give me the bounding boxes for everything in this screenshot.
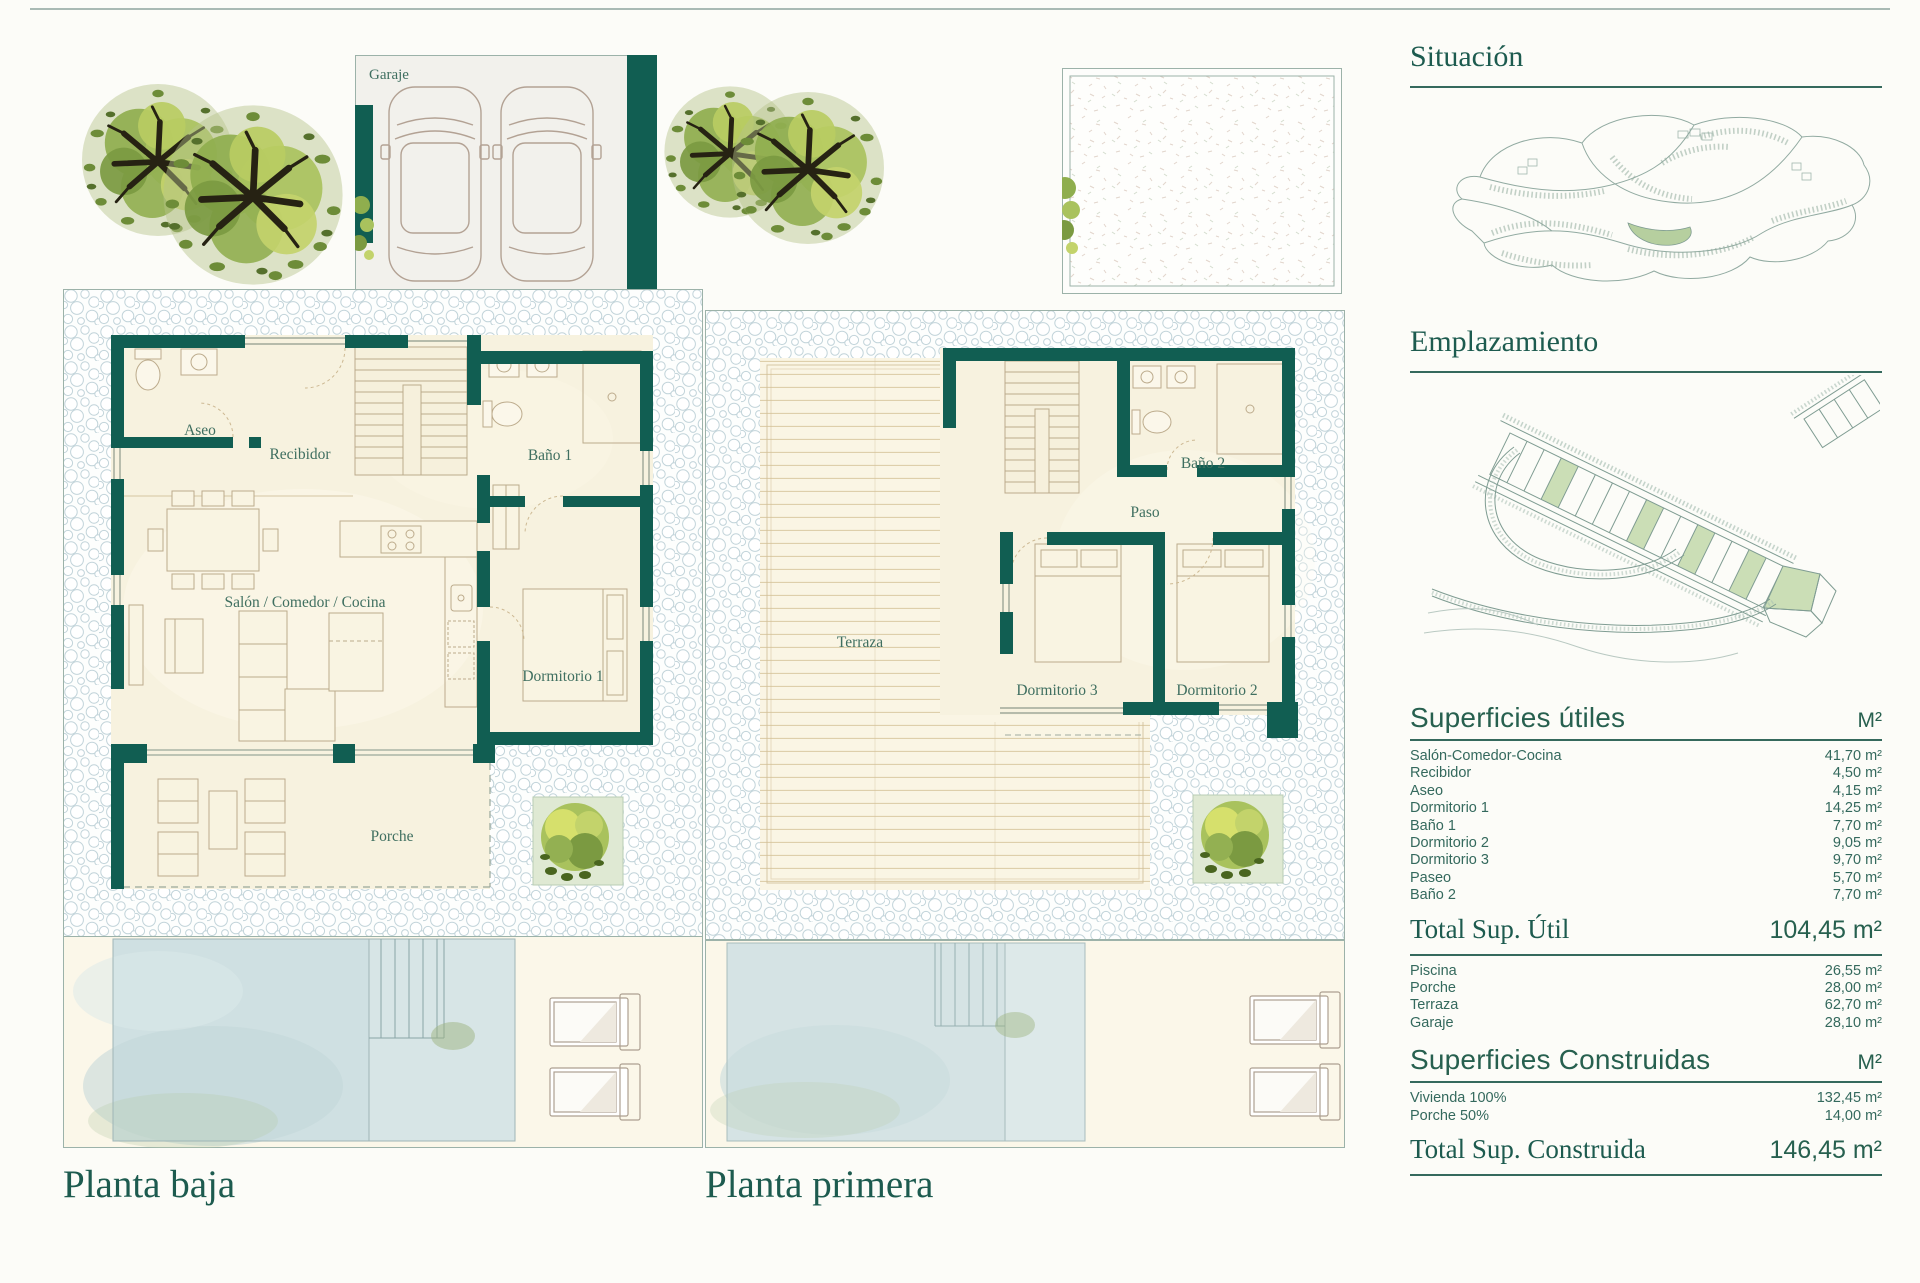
situacion-heading: Situación xyxy=(1410,40,1882,88)
table-row: Terraza62,70 m² xyxy=(1410,997,1882,1014)
surface-tables: Superficies útiles M² Salón-Comedor-Coci… xyxy=(1410,702,1882,1176)
room-label-dormitorio1: Dormitorio 1 xyxy=(522,668,603,685)
row-value: 5,70 m² xyxy=(1833,870,1882,887)
highlighted-plot xyxy=(1764,566,1820,611)
unit-label: M² xyxy=(1858,1051,1883,1075)
table-row: Recibidor4,50 m² xyxy=(1410,765,1882,782)
total-util-value: 104,45 m² xyxy=(1769,916,1882,945)
highlighted-parcel xyxy=(1628,223,1691,245)
row-value: 28,00 m² xyxy=(1825,980,1882,997)
table-row: Vivienda 100%132,45 m² xyxy=(1410,1090,1882,1107)
row-value: 26,55 m² xyxy=(1825,963,1882,980)
table-row: Piscina26,55 m² xyxy=(1410,963,1882,980)
table-row: Baño 27,70 m² xyxy=(1410,887,1882,904)
total-construida-value: 146,45 m² xyxy=(1769,1136,1882,1165)
room-label-paso: Paso xyxy=(1130,504,1160,521)
row-value: 62,70 m² xyxy=(1825,997,1882,1014)
outdoor-rows: Piscina26,55 m² Porche28,00 m² Terraza62… xyxy=(1410,963,1882,1033)
page-top-rule xyxy=(30,8,1890,10)
emplazamiento-heading: Emplazamiento xyxy=(1410,325,1882,373)
situacion-section: Situación xyxy=(1410,40,1882,88)
construidas-rows: Vivienda 100%132,45 m² Porche 50%14,00 m… xyxy=(1410,1090,1882,1125)
superficies-utiles-header: Superficies útiles M² xyxy=(1410,702,1882,741)
garden-bush xyxy=(533,797,623,885)
table-row: Porche28,00 m² xyxy=(1410,980,1882,997)
trees-plan2 xyxy=(640,60,900,260)
row-value: 14,00 m² xyxy=(1825,1108,1882,1125)
table-row: Baño 17,70 m² xyxy=(1410,818,1882,835)
table-row: Dormitorio 29,05 m² xyxy=(1410,835,1882,852)
bedroom3-furniture xyxy=(1035,544,1121,662)
row-label: Garaje xyxy=(1410,1015,1454,1032)
row-label: Terraza xyxy=(1410,997,1458,1014)
row-label: Porche 50% xyxy=(1410,1108,1489,1125)
row-value: 9,05 m² xyxy=(1833,835,1882,852)
row-label: Paseo xyxy=(1410,870,1451,887)
table-row: Salón-Comedor-Cocina41,70 m² xyxy=(1410,748,1882,765)
room-label-dormitorio3: Dormitorio 3 xyxy=(1016,682,1098,699)
row-value: 9,70 m² xyxy=(1833,852,1882,869)
trees-plan1 xyxy=(58,55,368,315)
stairs xyxy=(1005,361,1079,493)
plan1-pool-area xyxy=(63,936,703,1148)
row-label: Dormitorio 2 xyxy=(1410,835,1489,852)
row-label: Salón-Comedor-Cocina xyxy=(1410,748,1562,765)
plan2-plot: Terraza Baño 2 Paso Dormitorio 3 Dormito… xyxy=(705,310,1345,940)
row-label: Aseo xyxy=(1410,783,1443,800)
superficies-construidas-title: Superficies Construidas xyxy=(1410,1044,1710,1076)
room-label-terraza: Terraza xyxy=(837,634,883,651)
table-row: Dormitorio 114,25 m² xyxy=(1410,800,1882,817)
row-value: 132,45 m² xyxy=(1817,1090,1882,1107)
row-label: Piscina xyxy=(1410,963,1457,980)
emplazamiento-map xyxy=(1418,375,1880,665)
row-label: Baño 2 xyxy=(1410,887,1456,904)
room-label-recibidor: Recibidor xyxy=(269,446,331,463)
row-value: 14,25 m² xyxy=(1825,800,1882,817)
stairs xyxy=(355,347,467,475)
plan2-pool-area xyxy=(705,940,1345,1148)
row-label: Porche xyxy=(1410,980,1456,997)
row-label: Dormitorio 3 xyxy=(1410,852,1489,869)
total-util-label: Total Sup. Útil xyxy=(1410,914,1569,945)
garage-label: Garaje xyxy=(369,67,409,83)
garden-bush xyxy=(1193,795,1283,883)
total-construida-label: Total Sup. Construida xyxy=(1410,1134,1646,1165)
garden-square xyxy=(1062,68,1342,294)
row-value: 41,70 m² xyxy=(1825,748,1882,765)
plan2-title: Planta primera xyxy=(705,1162,934,1207)
table-row: Porche 50%14,00 m² xyxy=(1410,1108,1882,1125)
sun-lounger xyxy=(1250,992,1340,1048)
emplazamiento-section: Emplazamiento xyxy=(1410,325,1882,373)
table-row: Garaje28,10 m² xyxy=(1410,1015,1882,1032)
row-value: 7,70 m² xyxy=(1833,818,1882,835)
room-label-dormitorio2: Dormitorio 2 xyxy=(1176,682,1257,699)
row-value: 28,10 m² xyxy=(1825,1015,1882,1032)
superficies-construidas-header: Superficies Construidas M² xyxy=(1410,1044,1882,1083)
garage-plan: Garaje xyxy=(355,55,657,292)
row-value: 7,70 m² xyxy=(1833,887,1882,904)
total-construida: Total Sup. Construida 146,45 m² xyxy=(1410,1128,1882,1176)
plan1-title: Planta baja xyxy=(63,1162,235,1207)
room-label-aseo: Aseo xyxy=(184,422,216,439)
table-row: Paseo5,70 m² xyxy=(1410,870,1882,887)
unit-label: M² xyxy=(1858,709,1883,733)
room-label-bano2: Baño 2 xyxy=(1181,455,1225,472)
total-util: Total Sup. Útil 104,45 m² xyxy=(1410,908,1882,956)
row-value: 4,15 m² xyxy=(1833,783,1882,800)
table-row: Dormitorio 39,70 m² xyxy=(1410,852,1882,869)
row-value: 4,50 m² xyxy=(1833,765,1882,782)
table-row: Aseo4,15 m² xyxy=(1410,783,1882,800)
room-label-bano1: Baño 1 xyxy=(528,447,572,464)
sun-lounger xyxy=(550,1064,640,1120)
row-label: Recibidor xyxy=(1410,765,1471,782)
sun-lounger xyxy=(1250,1064,1340,1120)
row-label: Vivienda 100% xyxy=(1410,1090,1506,1107)
row-label: Baño 1 xyxy=(1410,818,1456,835)
plan1-plot: Aseo Recibidor Baño 1 Salón / Comedor / … xyxy=(63,289,703,937)
situacion-map xyxy=(1432,103,1880,303)
row-label: Dormitorio 1 xyxy=(1410,800,1489,817)
superficies-utiles-title: Superficies útiles xyxy=(1410,702,1625,734)
sun-lounger xyxy=(550,994,640,1050)
bedroom2-furniture xyxy=(1177,544,1269,662)
room-label-porche: Porche xyxy=(370,828,413,845)
utiles-rows: Salón-Comedor-Cocina41,70 m² Recibidor4,… xyxy=(1410,748,1882,905)
room-label-salon: Salón / Comedor / Cocina xyxy=(224,594,385,611)
brochure-page: Garaje xyxy=(0,0,1920,1283)
